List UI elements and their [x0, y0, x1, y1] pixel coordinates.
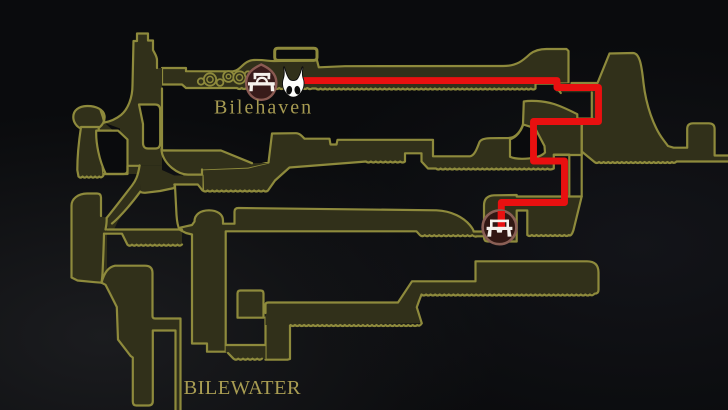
svg-text:Bilehaven: Bilehaven [214, 97, 313, 119]
svg-text:BILEWATER: BILEWATER [184, 377, 301, 399]
